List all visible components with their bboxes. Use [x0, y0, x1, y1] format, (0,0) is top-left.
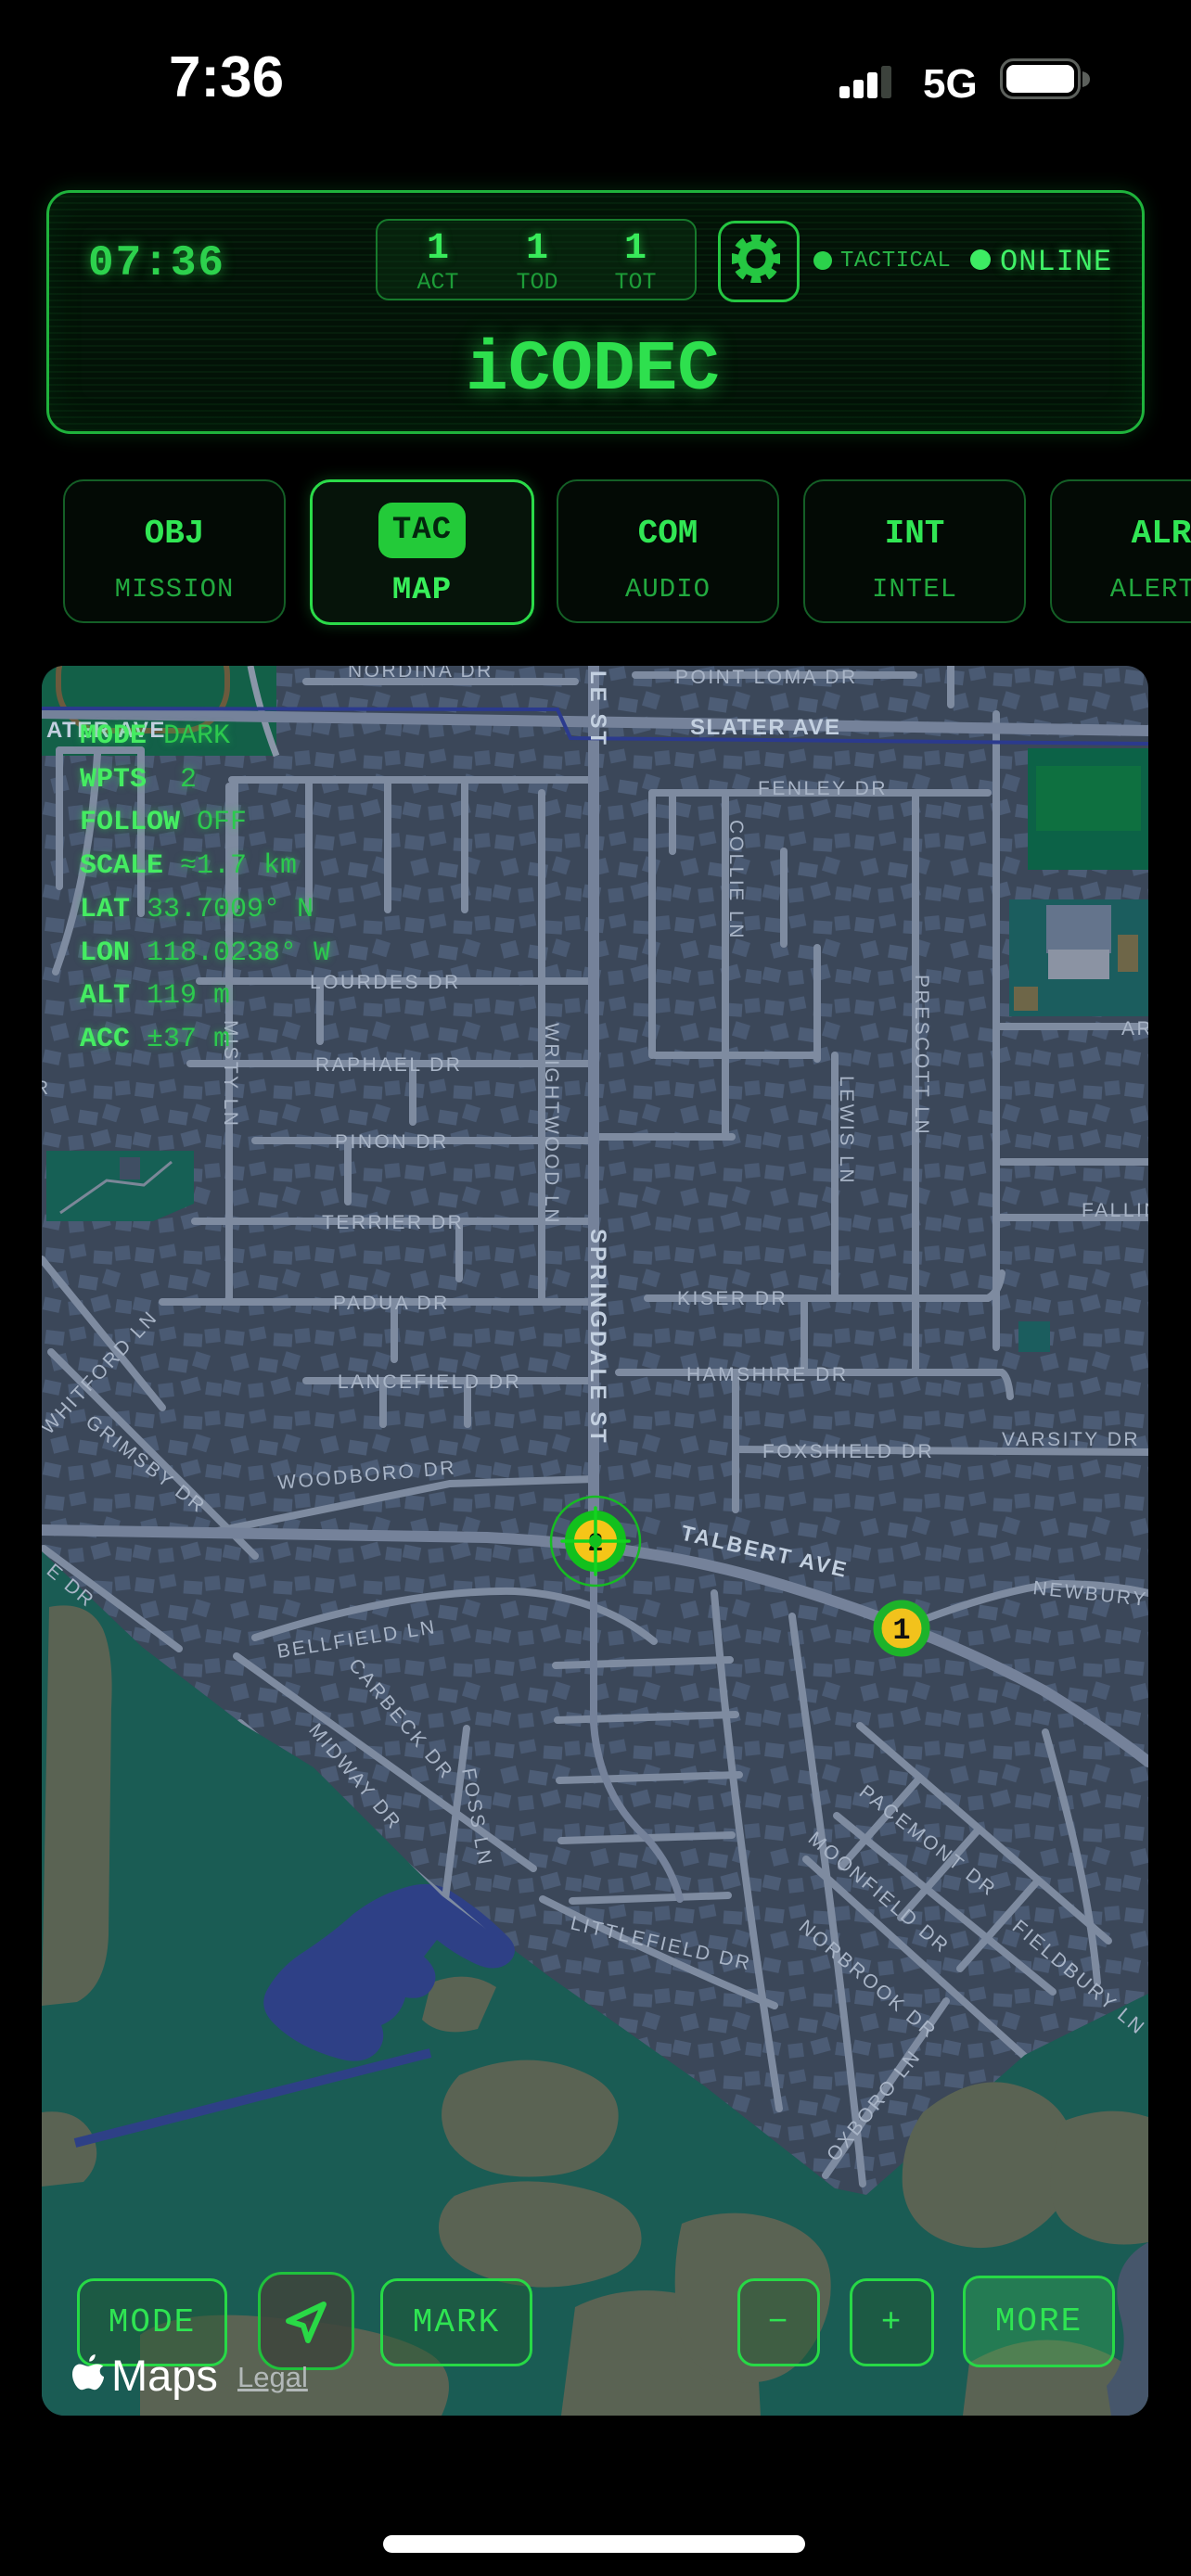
- svg-text:LAT 33.7009° N: LAT 33.7009° N: [80, 894, 314, 925]
- svg-text:FENLEY DR: FENLEY DR: [758, 778, 888, 799]
- svg-text:FOLLOW OFF: FOLLOW OFF: [80, 807, 247, 838]
- svg-text:PINON DR: PINON DR: [335, 1131, 449, 1153]
- svg-text:COLLIE LN: COLLIE LN: [725, 820, 747, 940]
- svg-text:WRIGHTWOOD LN: WRIGHTWOOD LN: [541, 1023, 562, 1225]
- svg-text:FALLINGWATER: FALLINGWATER: [1082, 1200, 1148, 1221]
- svg-text:NORDINA DR: NORDINA DR: [348, 666, 493, 682]
- svg-text:R: R: [42, 1078, 51, 1099]
- svg-text:ACC ±37 m: ACC ±37 m: [80, 1024, 230, 1055]
- svg-text:ARBOR: ARBOR: [1121, 1018, 1148, 1039]
- svg-text:LANCEFIELD DR: LANCEFIELD DR: [338, 1371, 521, 1393]
- svg-text:HAMSHIRE DR: HAMSHIRE DR: [686, 1364, 849, 1385]
- svg-text:RAPHAEL DR: RAPHAEL DR: [315, 1054, 462, 1076]
- svg-text:WPTS 2: WPTS 2: [80, 764, 197, 796]
- svg-text:MODE DARK: MODE DARK: [80, 721, 230, 752]
- svg-text:FOXSHIELD DR: FOXSHIELD DR: [762, 1441, 934, 1462]
- svg-text:SPRINGDALE ST: SPRINGDALE ST: [585, 1229, 610, 1446]
- svg-text:SLATER AVE: SLATER AVE: [690, 715, 841, 740]
- svg-text:TERRIER DR: TERRIER DR: [322, 1212, 464, 1233]
- svg-text:LEWIS LN: LEWIS LN: [836, 1076, 857, 1185]
- svg-text:KISER DR: KISER DR: [677, 1288, 788, 1309]
- svg-text:ALT 119 m: ALT 119 m: [80, 980, 230, 1012]
- svg-text:VARSITY DR: VARSITY DR: [1002, 1429, 1140, 1450]
- svg-text:SCALE ≈1.7 km: SCALE ≈1.7 km: [80, 850, 297, 882]
- svg-text:LON 118.0238° W: LON 118.0238° W: [80, 937, 330, 969]
- svg-text:POINT LOMA DR: POINT LOMA DR: [675, 667, 858, 688]
- svg-text:PADUA DR: PADUA DR: [333, 1293, 450, 1314]
- svg-text:PRESCOTT LN: PRESCOTT LN: [911, 975, 932, 1136]
- svg-text:LOURDES DR: LOURDES DR: [310, 972, 461, 993]
- svg-text:1: 1: [892, 1613, 910, 1648]
- svg-text:LE ST: LE ST: [585, 670, 610, 747]
